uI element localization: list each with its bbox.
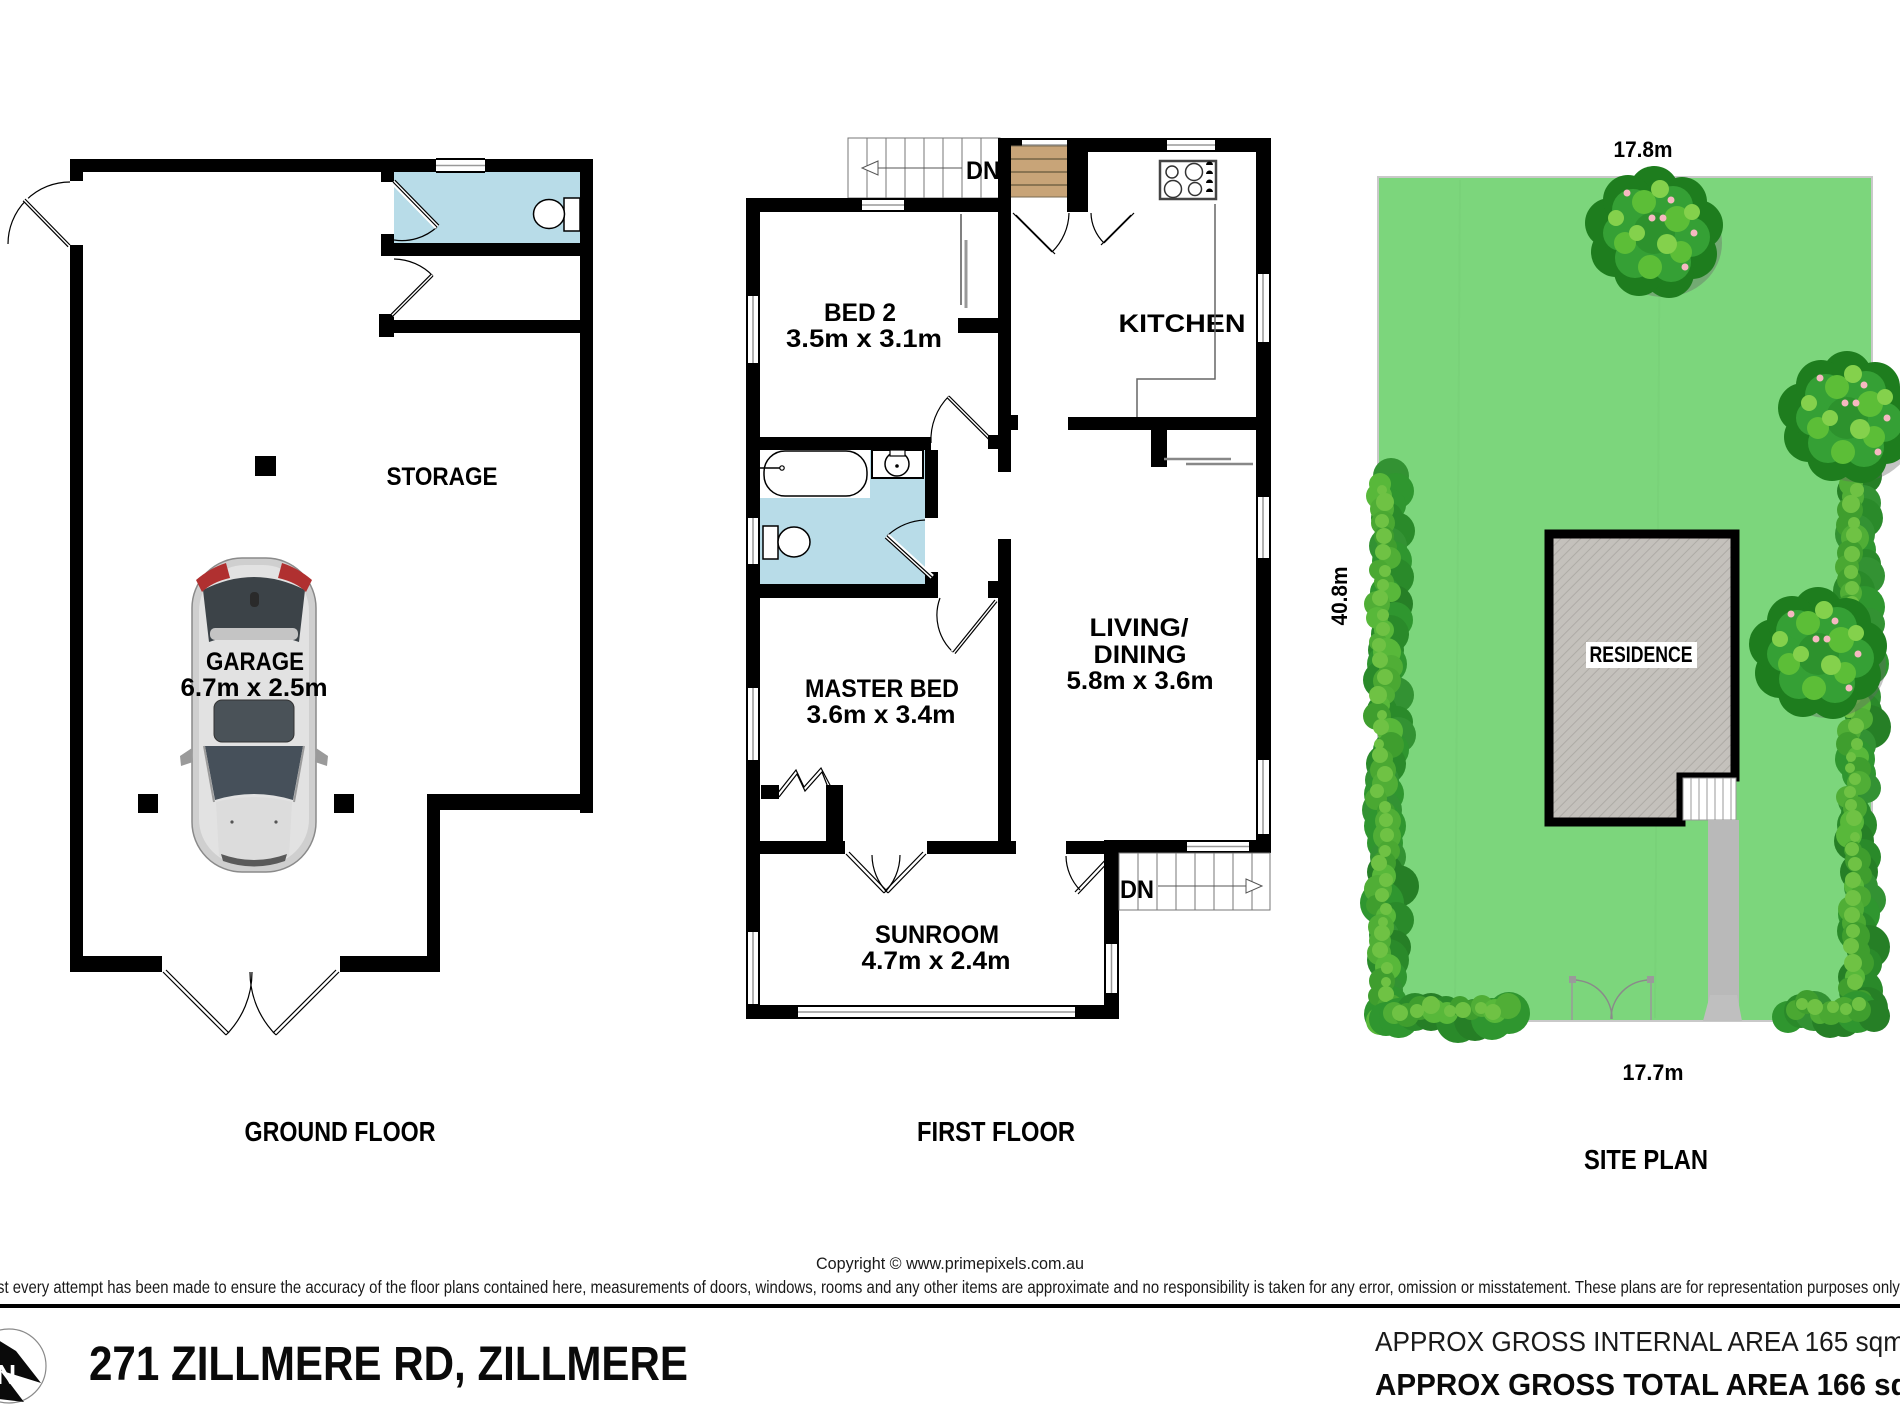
svg-text:APPROX GROSS INTERNAL AREA 165: APPROX GROSS INTERNAL AREA 165 sqm xyxy=(1375,1326,1900,1357)
svg-text:17.8m: 17.8m xyxy=(1614,137,1673,162)
svg-text:RESIDENCE: RESIDENCE xyxy=(1590,642,1693,667)
svg-text:MASTER BED: MASTER BED xyxy=(805,675,959,703)
svg-text:DN: DN xyxy=(966,157,1000,185)
svg-text:DINING: DINING xyxy=(1094,641,1187,669)
svg-text:GROUND FLOOR: GROUND FLOOR xyxy=(245,1116,436,1147)
svg-text:17.7m: 17.7m xyxy=(1623,1060,1684,1085)
svg-text:SITE PLAN: SITE PLAN xyxy=(1584,1144,1708,1175)
svg-text:271 ZILLMERE RD, ZILLMERE: 271 ZILLMERE RD, ZILLMERE xyxy=(89,1338,688,1391)
svg-text:DN: DN xyxy=(1120,876,1154,904)
svg-text:N: N xyxy=(0,1359,16,1390)
svg-text:40.8m: 40.8m xyxy=(1327,567,1352,626)
svg-text:SUNROOM: SUNROOM xyxy=(875,921,999,949)
svg-text:STORAGE: STORAGE xyxy=(387,463,498,491)
svg-text:5.8m x 3.6m: 5.8m x 3.6m xyxy=(1067,667,1214,695)
svg-text:BED 2: BED 2 xyxy=(824,299,896,327)
svg-text:GARAGE: GARAGE xyxy=(206,648,304,676)
svg-text:KITCHEN: KITCHEN xyxy=(1119,310,1246,338)
svg-text:Copyright © www.primepixels.co: Copyright © www.primepixels.com.au xyxy=(816,1254,1084,1273)
svg-text:6.7m x 2.5m: 6.7m x 2.5m xyxy=(181,674,328,702)
svg-text:4.7m x 2.4m: 4.7m x 2.4m xyxy=(862,947,1011,975)
svg-text:Whilst every attempt has been: Whilst every attempt has been made to en… xyxy=(0,1277,1900,1297)
svg-text:LIVING/: LIVING/ xyxy=(1090,614,1189,642)
svg-text:FIRST FLOOR: FIRST FLOOR xyxy=(917,1116,1075,1147)
svg-text:APPROX GROSS TOTAL AREA 166 sq: APPROX GROSS TOTAL AREA 166 sqm xyxy=(1375,1367,1900,1402)
svg-text:3.5m x 3.1m: 3.5m x 3.1m xyxy=(786,325,942,353)
svg-text:3.6m x 3.4m: 3.6m x 3.4m xyxy=(807,701,956,729)
